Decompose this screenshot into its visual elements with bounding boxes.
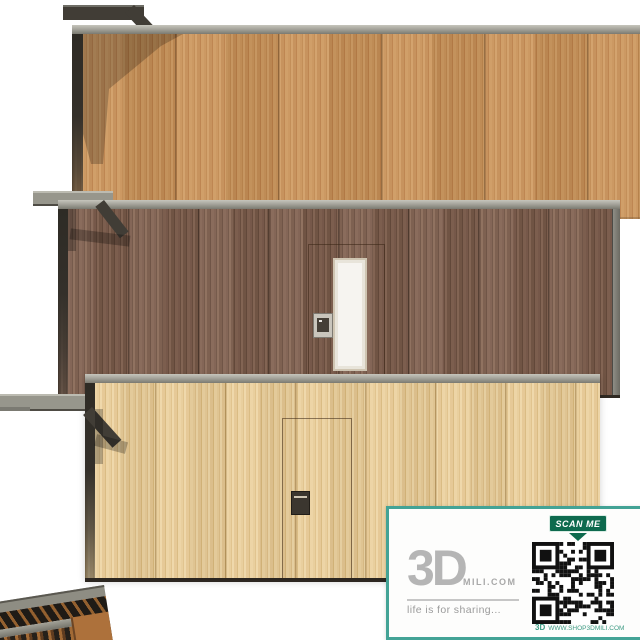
brand-logo: 3D [407,543,465,593]
wall-panel-oak [72,25,640,217]
door-handle [291,491,310,515]
panel-left-frame [58,209,68,395]
mount-shelf-step [0,407,30,411]
watermark-card: SCAN ME 3D MILI.COM life is for sharing.… [386,506,640,640]
scan-me-badge: SCAN ME [549,515,607,532]
render-canvas: SCAN ME 3D MILI.COM life is for sharing.… [0,0,640,640]
website-line: 3D WWW.SHOP3DMILI.COM [535,623,624,632]
brand-domain: MILI.COM [463,577,517,587]
scan-me-label: SCAN ME [555,519,600,529]
door-handle [313,313,333,338]
oak-wood-face [72,34,640,219]
bench-side-face [71,612,116,640]
panel-right-edge [612,209,620,395]
qr-code [532,542,614,624]
door-lock-slot [294,496,307,498]
brand-tagline: life is for sharing... [407,604,501,616]
panel-left-frame [72,34,83,217]
website-url: WWW.SHOP3DMILI.COM [548,625,624,632]
scan-me-arrow-icon [569,533,587,541]
website-logo-mark: 3D [535,623,545,632]
door-lock-pad [317,318,329,332]
ash-door [282,418,352,579]
logo-divider [407,599,519,601]
walnut-door [308,244,385,378]
slatted-bench [0,585,115,640]
door-glass-window [333,258,367,371]
wall-panel-walnut [58,200,620,395]
